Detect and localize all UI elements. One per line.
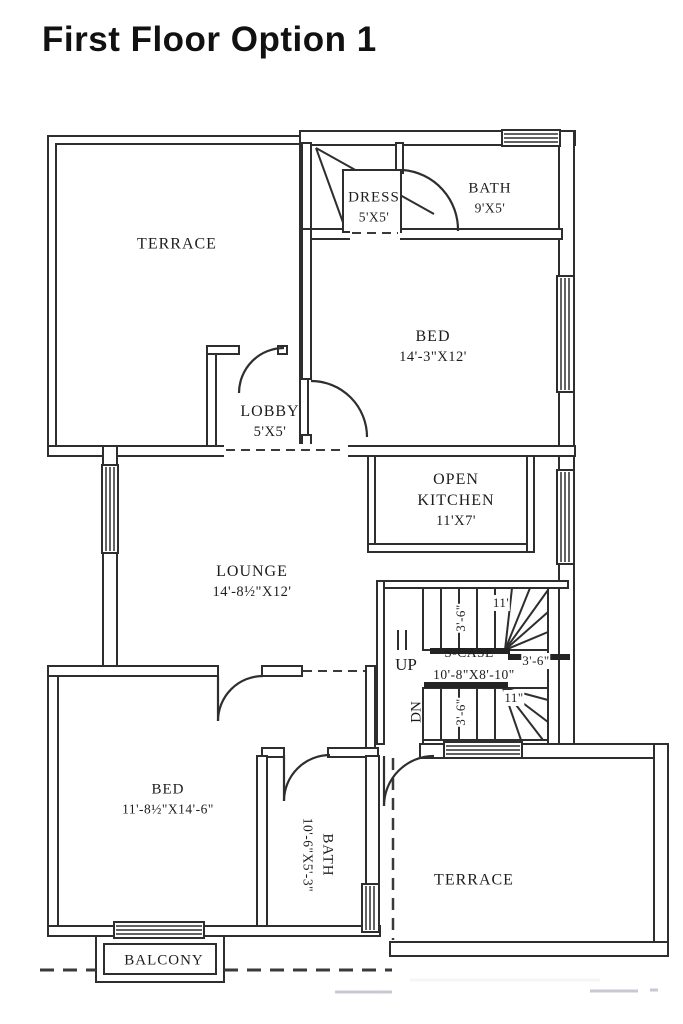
- door-arc: [284, 755, 330, 801]
- room-label-open-kitchen: OPEN KITCHEN 11'X7': [406, 470, 506, 530]
- room-label-balcony: BALCONY: [124, 951, 204, 971]
- room-name: BALCONY: [124, 951, 204, 971]
- room-label-bath-bottom: BATH 10'-6"X5'-3": [299, 818, 336, 892]
- floor-plan-drawing: [0, 0, 683, 1024]
- stairs-dim-top-tread: 11': [492, 595, 510, 611]
- room-name: BATH: [317, 818, 337, 892]
- stairs-dim-bottom-flight-width: 3'-6": [453, 697, 469, 726]
- room-name: OPEN KITCHEN: [406, 470, 506, 512]
- room-dims: 11'-8½"X14'-6": [122, 800, 214, 818]
- room-name: LOBBY: [240, 402, 299, 423]
- window: [557, 470, 574, 564]
- room-label-bed-bottom: BED 11'-8½"X14'-6": [122, 780, 214, 817]
- room-dims: 11'X7': [406, 511, 506, 530]
- room-label-terrace-bottom: TERRACE: [434, 871, 514, 892]
- window: [102, 465, 118, 553]
- staircase-name: S-CASE: [444, 645, 494, 661]
- window: [502, 130, 560, 146]
- room-label-bed-top: BED 14'-3"X12': [399, 327, 467, 367]
- room-label-terrace-top: TERRACE: [137, 235, 217, 256]
- stairs-down-label: DN: [409, 701, 426, 723]
- window: [557, 276, 574, 392]
- room-name: DRESS: [348, 188, 400, 208]
- room-dims: 14'-3"X12': [399, 348, 467, 367]
- room-label-dress: DRESS 5'X5': [348, 188, 400, 225]
- room-name: LOUNGE: [212, 562, 291, 583]
- room-dims: 14'-8½"X12': [212, 583, 291, 602]
- room-name: BATH: [468, 179, 511, 199]
- room-label-bath-top: BATH 9'X5': [468, 179, 511, 216]
- room-dims: 5'X5': [240, 423, 299, 442]
- staircase-dims: 10'-8"X8'-10": [433, 667, 515, 683]
- door-arc: [311, 381, 367, 437]
- watermark-remnant: [335, 980, 658, 992]
- room-name: TERRACE: [434, 871, 514, 892]
- room-dims: 5'X5': [348, 208, 400, 226]
- room-name: BED: [122, 780, 214, 800]
- window: [362, 884, 379, 932]
- door-arc: [218, 676, 263, 721]
- door-arc: [384, 756, 434, 806]
- floor-plan-page: First Floor Option 1: [0, 0, 683, 1024]
- room-label-lobby: LOBBY 5'X5': [240, 402, 299, 442]
- stairs-dim-bottom-tread: 11": [503, 690, 524, 706]
- stairs-dim-top-flight-width: 3'-6": [453, 603, 469, 632]
- stairs-dim-landing: 3'-6": [521, 653, 550, 669]
- stairs-up-label: UP: [395, 655, 417, 675]
- room-name: BED: [399, 327, 467, 348]
- room-dims: 10'-6"X5'-3": [299, 818, 317, 892]
- window: [444, 742, 522, 758]
- room-dims: 9'X5': [468, 199, 511, 217]
- room-label-lounge: LOUNGE 14'-8½"X12': [212, 562, 291, 602]
- window: [114, 922, 204, 938]
- room-name: TERRACE: [137, 235, 217, 256]
